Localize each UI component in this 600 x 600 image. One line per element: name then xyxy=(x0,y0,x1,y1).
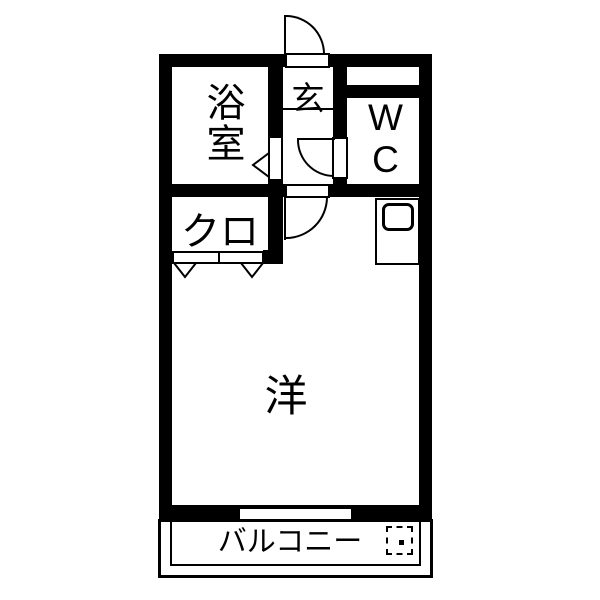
wall-right xyxy=(419,54,432,521)
bathroom-label: 浴室 xyxy=(196,82,248,172)
floor-plan: 浴室 玄 WC クロ 洋 バルコニー xyxy=(0,0,600,600)
wall-left xyxy=(159,54,172,521)
bathroom-door-triangle-icon xyxy=(251,151,271,179)
wc-door-swing-icon xyxy=(297,140,334,177)
entrance-opening xyxy=(285,53,330,68)
wall-closet-right xyxy=(268,197,283,254)
kitchen-sink-icon xyxy=(382,203,414,231)
entrance-label: 玄 xyxy=(283,72,333,110)
closet-door-triangle-right-icon xyxy=(240,262,264,279)
wc-window xyxy=(347,67,419,85)
wall-closet-bottom-right xyxy=(263,250,283,264)
wc-label: WC xyxy=(357,97,413,181)
main-door-swing-icon xyxy=(286,197,328,239)
entrance-door-swing-icon xyxy=(286,15,325,54)
closet-door-triangle-left-icon xyxy=(173,262,197,279)
balcony-label: バルコニー xyxy=(170,524,410,560)
wc-door-jamb xyxy=(332,137,348,179)
main-door-opening xyxy=(285,184,330,198)
closet-label: クロ xyxy=(172,201,268,247)
closet-door-panel-divider xyxy=(218,253,220,262)
main-room-label: 洋 xyxy=(263,362,309,408)
